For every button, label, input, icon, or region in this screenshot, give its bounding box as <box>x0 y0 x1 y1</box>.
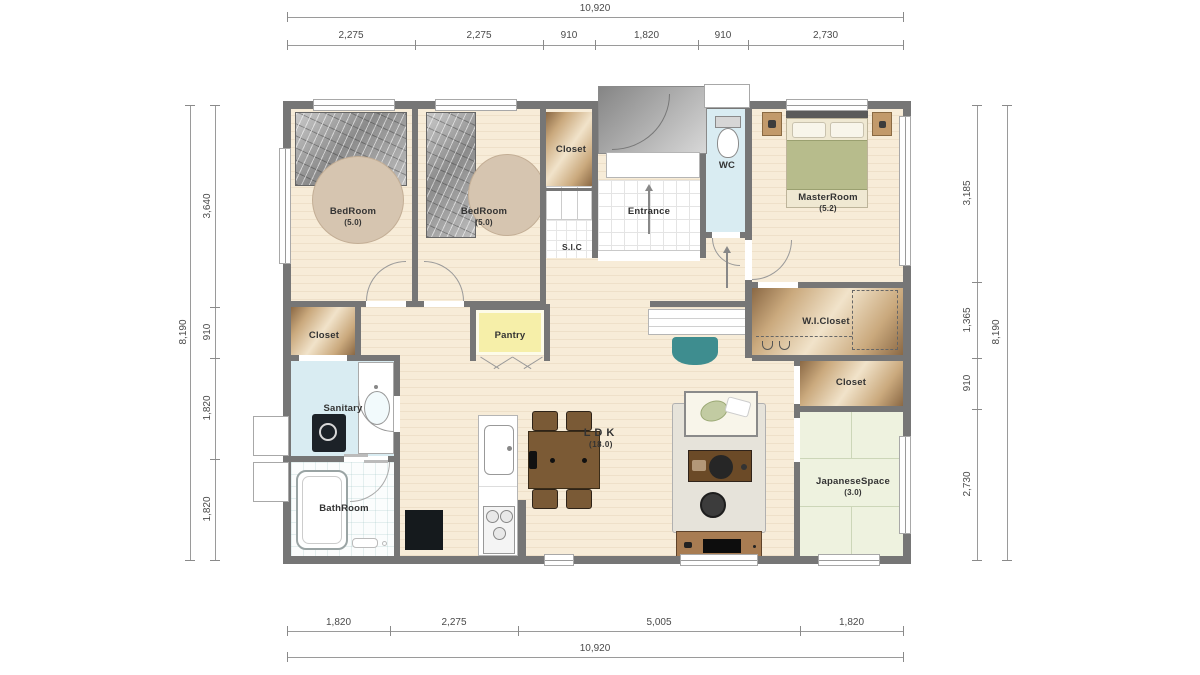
room-name: WC <box>719 160 735 171</box>
toilet-bowl <box>717 128 739 158</box>
dim-tick <box>287 40 288 50</box>
table-cup <box>741 464 747 470</box>
lamp <box>879 121 886 128</box>
sofa-seat <box>684 391 758 437</box>
dim-tick <box>1002 105 1012 106</box>
dim-tick <box>972 282 982 283</box>
dim-line <box>287 657 903 658</box>
room-label-master: MasterRoom (5.2) <box>798 192 858 214</box>
door-opening <box>794 418 800 462</box>
drain <box>382 541 387 546</box>
burner <box>493 527 506 540</box>
dim-line <box>287 17 903 18</box>
door-opening <box>394 396 400 432</box>
dim-tick <box>748 40 749 50</box>
dim-tick <box>390 626 391 636</box>
room-label-closet-top: Closet <box>556 144 586 155</box>
dim-tick <box>972 105 982 106</box>
dim-tick <box>595 40 596 50</box>
dim-top-seg: 910 <box>698 29 748 42</box>
cushion <box>724 396 751 418</box>
wall <box>546 188 592 191</box>
room-name: BedRoom <box>461 206 507 217</box>
table-setting <box>582 458 587 463</box>
dim-line <box>190 105 191 560</box>
room-name: LDK <box>584 428 619 439</box>
room-label-bathroom: BathRoom <box>319 503 369 514</box>
dim-top-seg: 2,275 <box>287 29 415 42</box>
dining-chair <box>532 489 558 509</box>
door-fold-line <box>561 187 562 219</box>
dim-tick <box>210 105 220 106</box>
table-setting <box>550 458 555 463</box>
window <box>313 99 395 111</box>
room-label-closet-left: Closet <box>309 330 339 341</box>
sliding-door <box>344 454 368 457</box>
room-name: BedRoom <box>330 206 376 217</box>
dim-line <box>977 105 978 560</box>
drain-fixture <box>352 538 378 548</box>
tv <box>703 539 741 553</box>
wall <box>355 307 361 361</box>
tatami-line <box>851 506 852 556</box>
room-name: Closet <box>556 144 586 155</box>
wall <box>540 109 546 304</box>
dim-line <box>215 105 216 560</box>
room-name: Closet <box>836 377 866 388</box>
door-opening <box>794 366 800 404</box>
beanbag <box>672 337 718 365</box>
room-name: MasterRoom <box>798 192 858 203</box>
bench-line <box>649 318 751 319</box>
dim-bottom-seg: 1,820 <box>287 616 390 629</box>
dim-line <box>1007 105 1008 560</box>
faucet <box>374 385 378 389</box>
table-tray <box>692 460 706 471</box>
door-opening <box>745 240 752 280</box>
room-name: Closet <box>309 330 339 341</box>
dim-tick <box>903 40 904 50</box>
room-name: W.I.Closet <box>802 316 849 327</box>
window <box>818 554 880 566</box>
dim-tick <box>1002 560 1012 561</box>
window <box>786 99 868 111</box>
dim-tick <box>518 626 519 636</box>
refrigerator <box>405 510 443 550</box>
living-table <box>688 450 752 482</box>
dim-tick <box>903 652 904 662</box>
dim-bottom-seg: 2,275 <box>390 616 518 629</box>
table-bowl <box>709 455 733 479</box>
washing-machine <box>312 414 346 452</box>
wall <box>650 301 752 307</box>
dim-right-seg: 910 <box>962 348 974 418</box>
room-name: JapaneseSpace <box>816 476 890 487</box>
wall <box>412 109 418 304</box>
room-name: BathRoom <box>319 503 369 514</box>
bench-line <box>649 326 751 327</box>
dim-tick <box>210 560 220 561</box>
room-area: (5.2) <box>798 203 858 214</box>
floor-cushion <box>700 492 726 518</box>
blanket <box>787 140 867 190</box>
dim-tick <box>543 40 544 50</box>
faucet <box>507 446 512 451</box>
wall <box>745 109 752 358</box>
av-device <box>684 542 692 548</box>
room-area: (18.0) <box>584 439 619 450</box>
room-label-wic: W.I.Closet <box>802 316 849 327</box>
lamp <box>768 120 776 128</box>
door-fold-line <box>577 187 578 219</box>
window <box>279 148 291 264</box>
nightstand <box>872 112 892 136</box>
room-name: Entrance <box>628 206 670 217</box>
dim-top-seg: 910 <box>543 29 595 42</box>
wall <box>470 304 476 361</box>
dining-chair <box>532 411 558 431</box>
window <box>544 554 574 566</box>
dim-top-seg: 2,275 <box>415 29 543 42</box>
dim-left-seg: 1,820 <box>202 474 214 544</box>
washer-door <box>319 423 337 441</box>
room-label-wc: WC <box>719 160 735 171</box>
room-label-ldk: LDK (18.0) <box>584 428 619 450</box>
dim-tick <box>287 12 288 22</box>
counter-seam <box>479 486 517 487</box>
dim-left-seg: 3,640 <box>202 171 214 241</box>
knob <box>753 545 756 548</box>
room-label-sanitary: Sanitary <box>323 403 362 414</box>
pillow <box>792 122 826 138</box>
dim-right-total: 8,190 <box>991 297 1003 367</box>
dim-tick <box>185 105 195 106</box>
wall <box>544 304 550 361</box>
front-door-step <box>606 152 700 178</box>
dim-left-total: 8,190 <box>178 297 190 367</box>
burner <box>486 510 499 523</box>
dim-right-seg: 3,185 <box>962 158 974 228</box>
dim-bottom-total: 10,920 <box>287 642 903 655</box>
room-area: (5.0) <box>330 217 376 228</box>
pillow <box>830 122 864 138</box>
room-label-sic: S.I.C <box>562 242 582 253</box>
room-label-japanese: JapaneseSpace (3.0) <box>816 476 890 498</box>
exterior-unit <box>253 462 289 502</box>
dim-left-seg: 910 <box>202 297 214 367</box>
room-label-closet-right: Closet <box>836 377 866 388</box>
room-name: Pantry <box>495 330 526 341</box>
dim-tick <box>210 459 220 460</box>
dim-top-seg: 2,730 <box>748 29 903 42</box>
closet-top-door <box>546 186 592 220</box>
dim-right-seg: 2,730 <box>962 449 974 519</box>
dim-right-seg: 1,365 <box>962 285 974 355</box>
room-name: Sanitary <box>323 403 362 414</box>
dim-bottom-seg: 5,005 <box>518 616 800 629</box>
room-label-pantry: Pantry <box>495 330 526 341</box>
dim-tick <box>415 40 416 50</box>
wall <box>752 355 903 361</box>
dim-top-total: 10,920 <box>287 2 903 15</box>
exterior-fixture <box>704 84 750 108</box>
window <box>680 554 758 566</box>
room-label-bedroom-2: BedRoom (5.0) <box>461 206 507 228</box>
door-opening <box>299 355 347 361</box>
wic-hanger-rod <box>756 336 852 337</box>
wall <box>800 406 903 412</box>
dim-tick <box>972 560 982 561</box>
dim-tick <box>698 40 699 50</box>
entrance-step <box>598 250 700 261</box>
room-label-entrance: Entrance <box>628 206 670 217</box>
tatami-line <box>800 458 903 459</box>
dim-bottom-seg: 1,820 <box>800 616 903 629</box>
floor-plan: BedRoom (5.0) BedRoom (5.0) Closet S.I.C… <box>0 0 1200 675</box>
door-opening <box>424 301 464 307</box>
room-area: (3.0) <box>816 487 890 498</box>
dim-tick <box>903 12 904 22</box>
dim-tick <box>185 560 195 561</box>
room-label-bedroom-1: BedRoom (5.0) <box>330 206 376 228</box>
burner <box>500 510 513 523</box>
toilet-tank <box>715 116 741 128</box>
window <box>435 99 517 111</box>
wc-arrow <box>726 252 728 288</box>
table-item <box>529 451 537 469</box>
window-bench <box>648 309 752 335</box>
dim-left-seg: 1,820 <box>202 373 214 443</box>
window <box>899 436 911 534</box>
window <box>899 116 911 266</box>
door-opening <box>758 282 798 288</box>
exterior-unit <box>253 416 289 456</box>
room-name: S.I.C <box>562 242 582 253</box>
dim-tick <box>800 626 801 636</box>
stove <box>483 506 515 554</box>
outer-wall-bottom <box>283 556 911 564</box>
door-opening <box>366 301 406 307</box>
round-rug <box>312 156 404 244</box>
nightstand <box>762 112 782 136</box>
dim-tick <box>287 626 288 636</box>
dining-chair <box>566 489 592 509</box>
room-area: (5.0) <box>461 217 507 228</box>
kitchen-counter <box>478 415 518 556</box>
tatami-line <box>851 412 852 458</box>
dim-tick <box>903 626 904 636</box>
dim-tick <box>287 652 288 662</box>
double-bed-headboard <box>786 110 868 118</box>
dim-line <box>287 631 903 632</box>
wall <box>476 304 544 310</box>
wic-hanger-zone <box>852 290 898 350</box>
wc-arrow-head <box>723 246 731 253</box>
wall-stub <box>518 500 526 556</box>
entry-arrow-head <box>645 184 653 191</box>
dim-top-seg: 1,820 <box>595 29 698 42</box>
